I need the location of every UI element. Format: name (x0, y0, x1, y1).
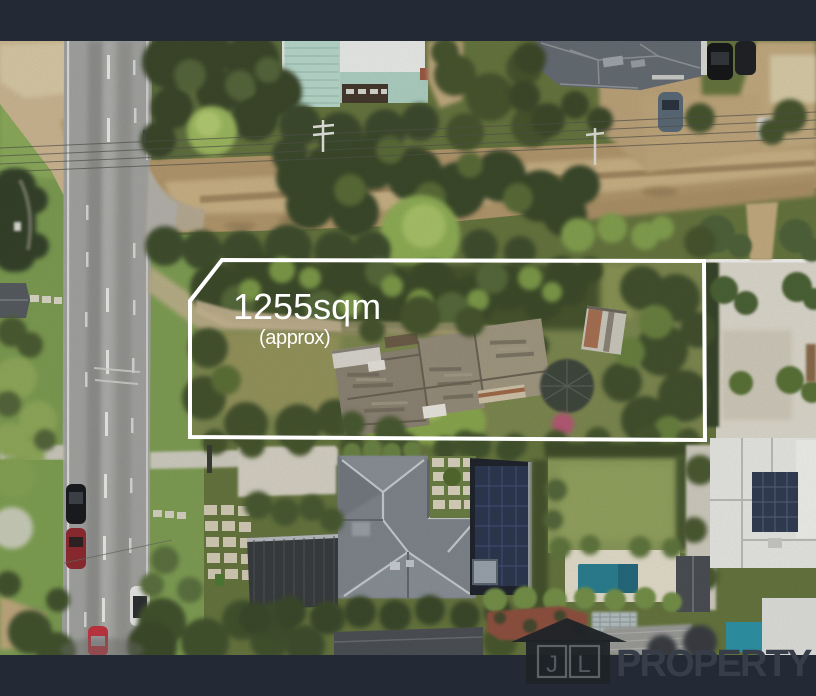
svg-text:J: J (546, 651, 558, 678)
svg-text:(approx): (approx) (259, 327, 330, 349)
svg-text:PROPERTY: PROPERTY (616, 643, 812, 685)
svg-text:1255sqm: 1255sqm (233, 286, 381, 327)
svg-text:L: L (577, 651, 590, 678)
